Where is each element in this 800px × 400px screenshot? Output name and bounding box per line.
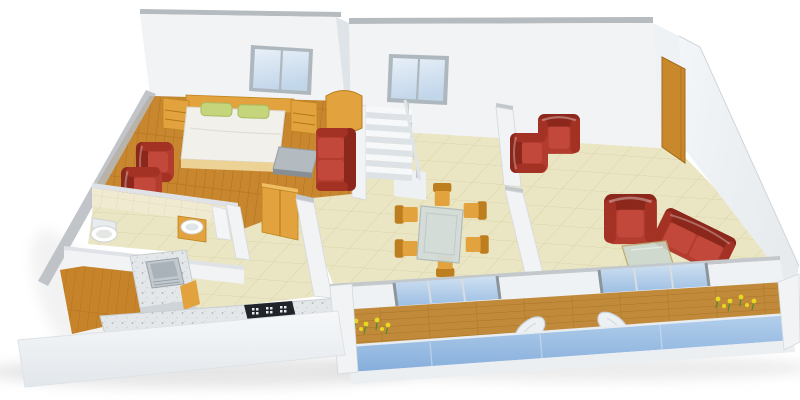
gray-coffee-table	[273, 147, 318, 178]
dining-chair-e1	[464, 201, 487, 219]
stair-steps	[366, 106, 412, 181]
hall-window	[387, 54, 449, 105]
washbasin	[178, 216, 206, 242]
dining-chair-w2	[395, 239, 418, 257]
curved-wardrobe	[326, 91, 362, 133]
floorplan-render	[0, 0, 800, 400]
kitchen-sink	[146, 258, 184, 288]
dining-chair-n	[433, 183, 451, 206]
bed-mattress	[181, 107, 285, 163]
dining-chair-e2	[466, 235, 489, 253]
hall-closet	[262, 183, 298, 240]
toilet	[91, 218, 117, 242]
living-armchair-pair-2	[510, 133, 548, 173]
entrance-door	[662, 57, 685, 163]
bedroom-window	[249, 45, 313, 95]
hall-back-wall-cap	[349, 17, 653, 24]
bedside-table-right	[291, 100, 317, 134]
glass-dining-table	[417, 206, 463, 263]
dining-chair-w1	[395, 205, 418, 223]
living-armchair-large	[604, 194, 657, 244]
bedroom-sofa	[316, 128, 356, 191]
bedroom-back-wall	[140, 14, 345, 101]
